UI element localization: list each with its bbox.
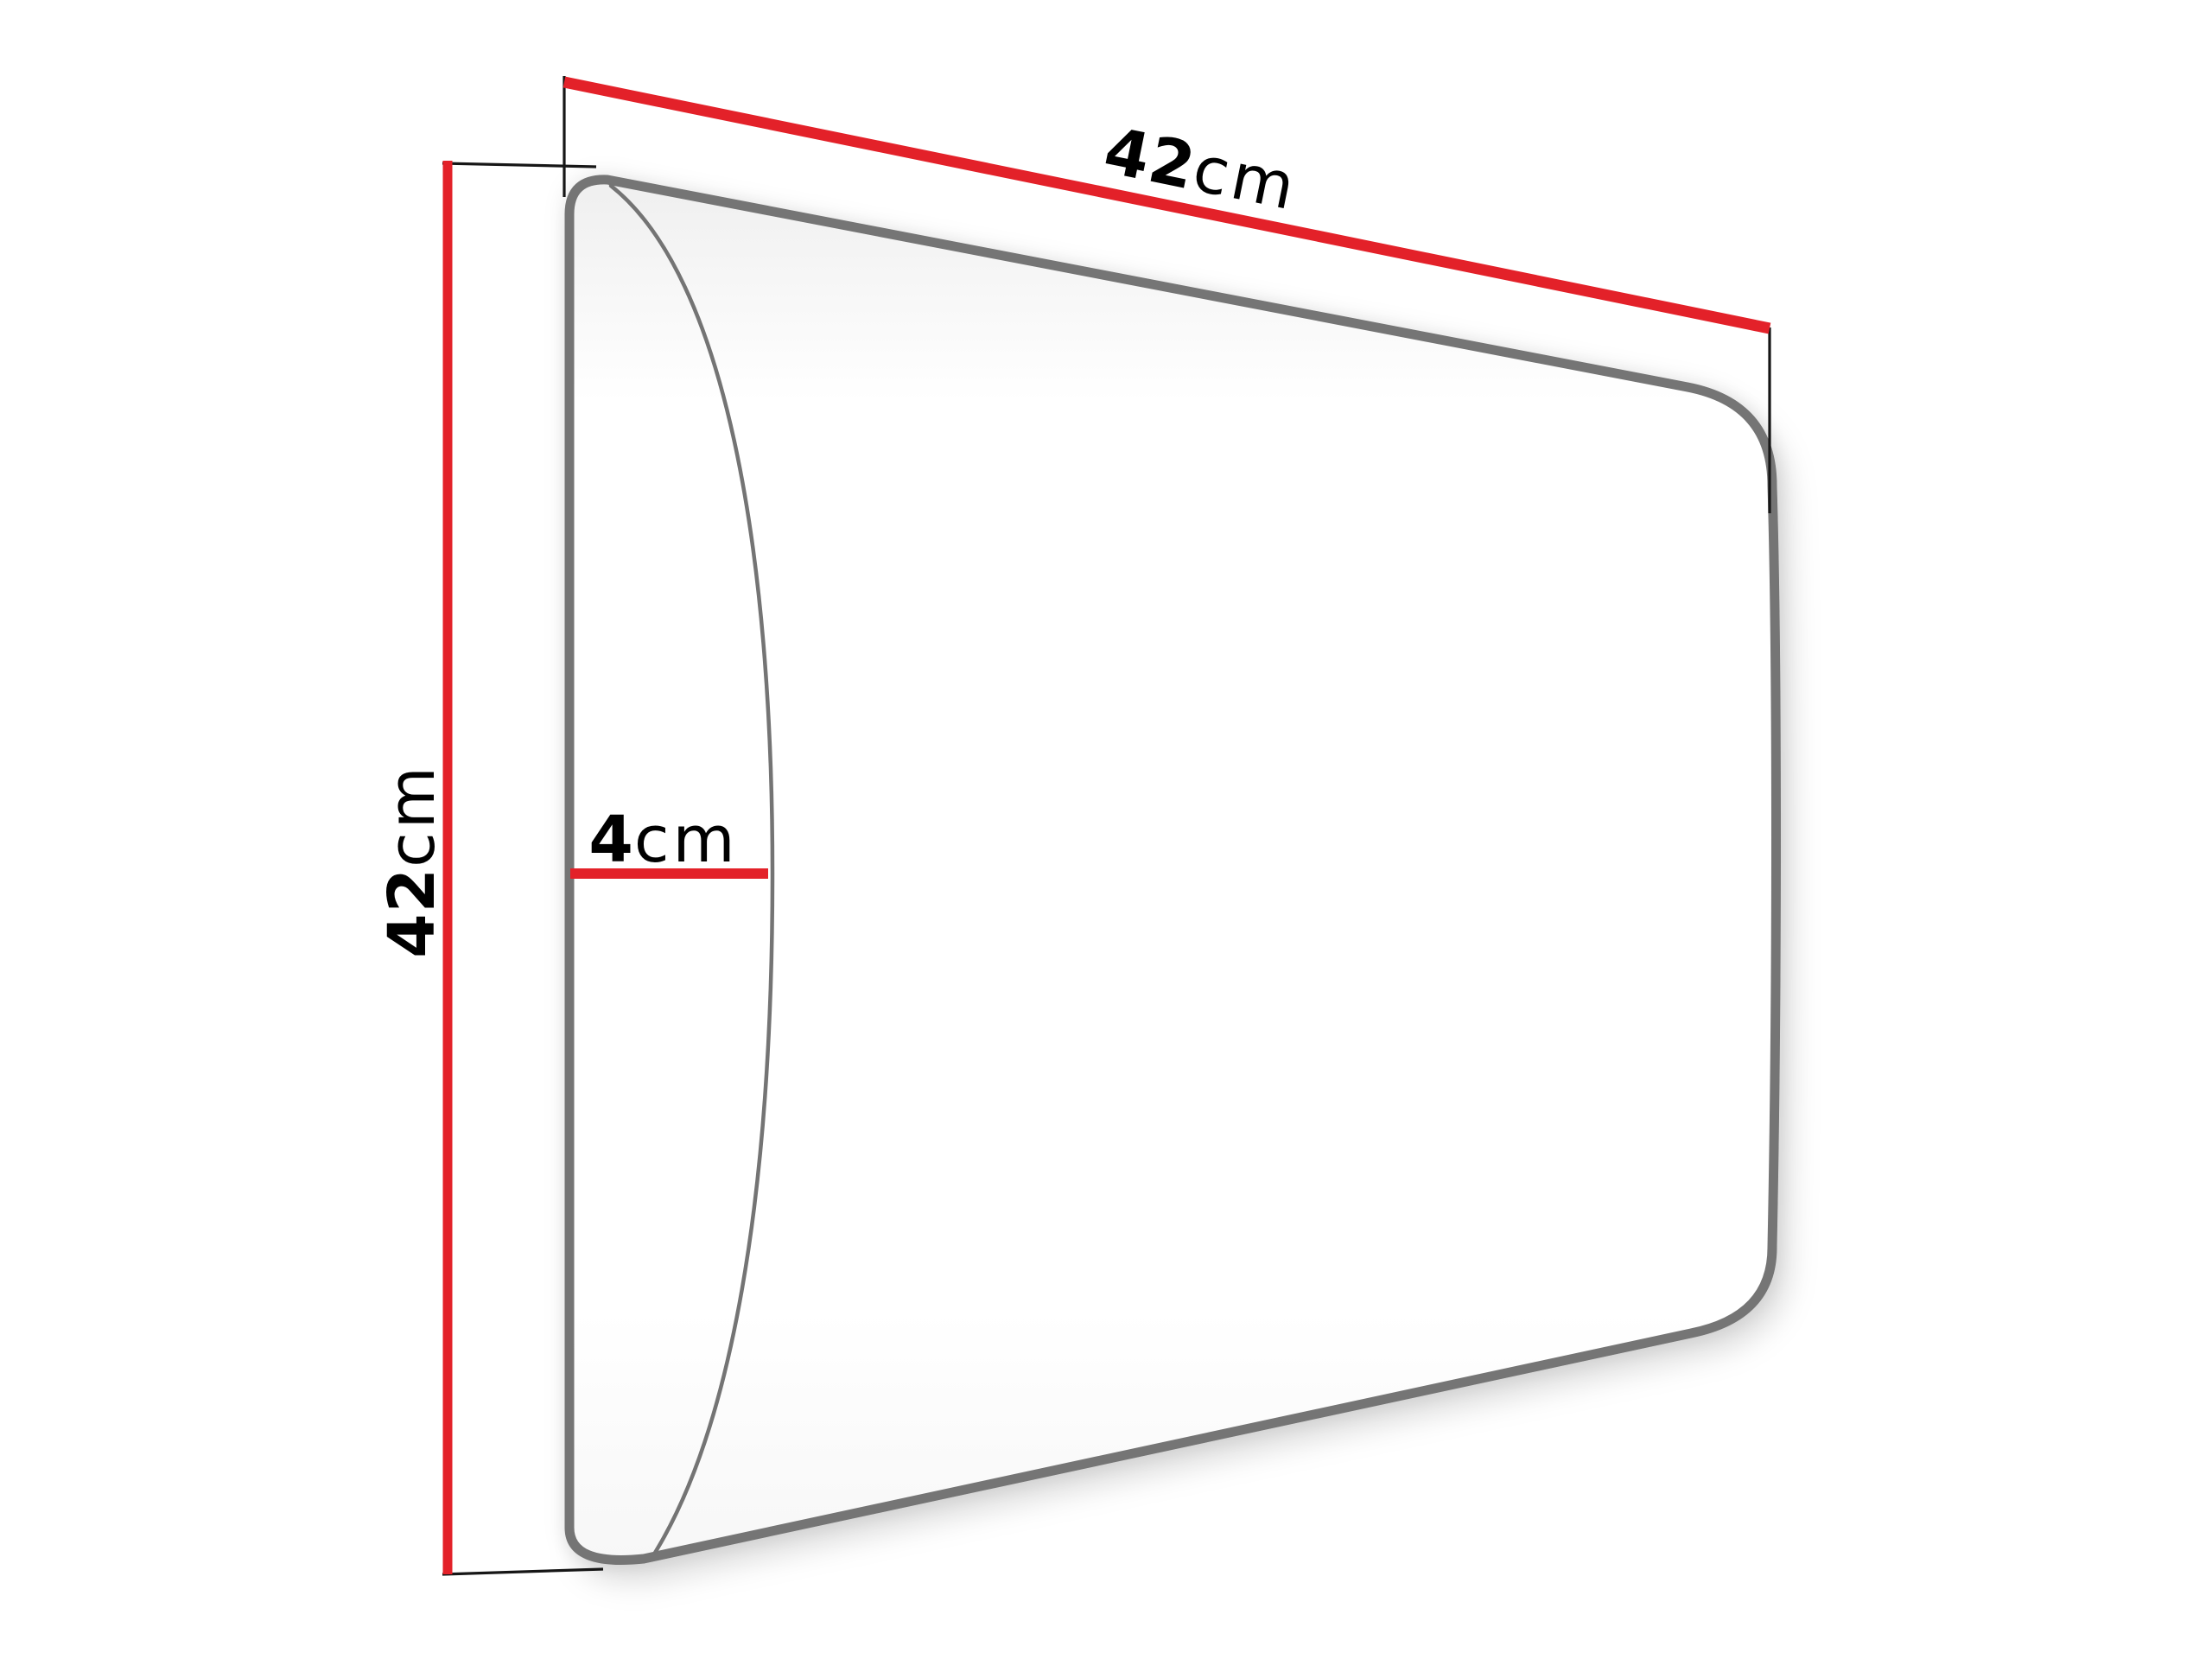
height-value: 42 (375, 868, 449, 958)
depth-dimension-label: 4cm (588, 808, 738, 872)
depth-unit: cm (634, 803, 739, 877)
extension-line-bottom-left-horizontal (442, 1569, 603, 1574)
depth-value: 4 (588, 803, 634, 877)
height-dimension-label: 42cm (380, 763, 444, 958)
height-unit: cm (375, 763, 449, 868)
extension-line-top-left-horizontal (442, 163, 596, 167)
panel-dimension-diagram: 42cm 42cm 4cm (0, 0, 2212, 1659)
panel-drawing (0, 0, 2212, 1659)
